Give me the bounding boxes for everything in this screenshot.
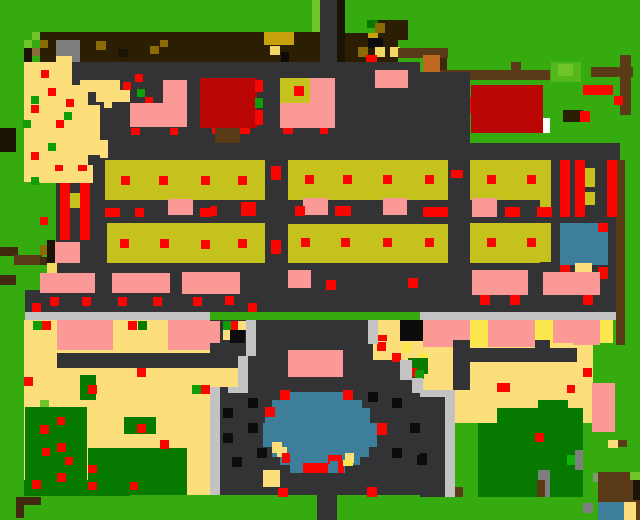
stool [118, 297, 127, 306]
plate [120, 239, 129, 248]
east-bush [497, 408, 583, 423]
roof-trim [40, 40, 48, 48]
stool [50, 297, 59, 306]
plate [201, 240, 210, 249]
berry [160, 440, 169, 449]
seat-mat [472, 198, 497, 217]
se-water [598, 502, 624, 520]
berry [57, 473, 66, 482]
roof-trim [118, 49, 128, 57]
floor-tile [232, 457, 242, 467]
se-shed-door [633, 480, 640, 500]
berry [42, 321, 51, 330]
berry [48, 88, 56, 96]
table-pink [288, 270, 311, 288]
awning-west [57, 320, 113, 350]
stone [583, 503, 593, 513]
bench-west [57, 353, 217, 368]
plaza-annex [420, 397, 445, 497]
pond-buoy [343, 390, 353, 400]
stool [105, 208, 120, 217]
table-pink [40, 273, 95, 293]
plate [305, 175, 314, 184]
berry [88, 385, 97, 394]
berry [57, 417, 65, 425]
plaza-curb [210, 387, 220, 495]
pond [265, 408, 370, 423]
flag [255, 80, 263, 92]
blossom-canopy [24, 62, 72, 182]
berry [65, 457, 73, 465]
trunk [455, 487, 463, 497]
leaf [31, 177, 39, 185]
stool [210, 206, 217, 216]
leaf [255, 98, 263, 108]
berry [66, 99, 74, 107]
patch [210, 368, 238, 387]
berry [88, 465, 97, 473]
plate [383, 238, 392, 247]
bench-north [215, 128, 240, 143]
berry [88, 482, 97, 490]
leaf [138, 321, 147, 330]
plate [527, 175, 536, 184]
stool [283, 128, 293, 134]
table-pink [112, 273, 170, 293]
plate [343, 175, 352, 184]
stool [241, 202, 256, 216]
awning-east [553, 320, 573, 343]
table-pink [472, 270, 528, 295]
berry [130, 482, 138, 490]
awning-east [573, 320, 600, 345]
blossom-streak [104, 100, 112, 108]
banner-pole [543, 118, 550, 133]
west-branch [40, 257, 47, 265]
roof-trim [150, 46, 159, 54]
floor-tile [248, 423, 258, 433]
stool [423, 207, 448, 217]
roof-trim [375, 23, 385, 33]
berry [137, 424, 146, 433]
pond-shore [263, 470, 280, 487]
pond-buoy [377, 423, 387, 435]
awning-east [488, 320, 535, 347]
stump [618, 440, 627, 447]
stool [408, 278, 418, 288]
plate [487, 175, 496, 184]
shrine-pillar [560, 160, 570, 217]
floor-tile [230, 330, 245, 343]
stool [480, 295, 490, 305]
leaf [630, 472, 640, 480]
tray [294, 86, 304, 96]
garden-patch [558, 64, 573, 76]
stool [135, 208, 144, 217]
stool [82, 297, 91, 306]
stool [131, 128, 140, 135]
berry [135, 74, 143, 82]
shrine-pillar [607, 160, 617, 217]
berry [56, 120, 64, 128]
blossom-streak [96, 90, 130, 102]
stool [193, 297, 202, 306]
leaf [31, 96, 39, 104]
red-banner-west [200, 78, 257, 128]
se-shore [636, 502, 640, 520]
table-endcap [540, 223, 551, 262]
leaf [48, 143, 56, 151]
blossom-canopy [100, 140, 108, 158]
stool [278, 488, 288, 497]
plate [425, 238, 434, 247]
west-planter [0, 128, 16, 152]
stall-pink-east [592, 383, 615, 432]
berry [497, 383, 510, 392]
south-path [317, 495, 337, 520]
sidewalk-west [25, 312, 210, 320]
roof-trim [160, 40, 168, 47]
floor-tile [257, 448, 267, 458]
plaza-curb [246, 320, 256, 356]
stool [240, 128, 250, 134]
crate [423, 55, 440, 72]
floor-tile [223, 433, 233, 443]
stool [153, 297, 162, 306]
floor-tile [392, 448, 402, 458]
berry [32, 480, 41, 489]
floor-tile [420, 453, 427, 465]
stool [510, 295, 520, 305]
pond-buoy [282, 453, 290, 463]
awning-gap [600, 320, 613, 343]
stool [320, 128, 328, 134]
shrine-window [585, 192, 595, 205]
stool [583, 295, 593, 305]
blossom-canopy [56, 56, 72, 64]
stool [170, 128, 178, 135]
west-branch [14, 255, 42, 265]
berry [31, 105, 39, 113]
trunk [537, 480, 545, 497]
leaf [33, 321, 42, 330]
plate [121, 176, 130, 185]
plate [383, 175, 392, 184]
berry [137, 368, 146, 377]
patch [608, 440, 618, 448]
stool [326, 280, 336, 290]
berry [580, 111, 590, 122]
torii-west [80, 183, 90, 240]
roof-lamp [270, 46, 280, 55]
plaza-curb [368, 320, 378, 344]
gate-mat [55, 242, 80, 263]
torii-west [60, 183, 70, 240]
stool [451, 170, 463, 178]
berry [123, 82, 131, 90]
table-endcap [540, 160, 551, 207]
shrine-window [585, 168, 595, 187]
sidewalk-east [420, 312, 616, 320]
floor-tile [368, 392, 378, 402]
torii-window [70, 215, 80, 232]
stall-pink-west [130, 103, 187, 127]
floor-tile [248, 398, 258, 408]
stool [367, 487, 377, 497]
bench-east [463, 348, 577, 362]
berry [614, 96, 623, 105]
stall-pink-ne [375, 70, 408, 88]
awning-west [168, 320, 210, 350]
pond-buoy [265, 407, 275, 417]
pond [330, 461, 338, 472]
patch [402, 343, 412, 353]
pond-shore [343, 460, 353, 466]
stool [248, 303, 257, 312]
pond [272, 400, 362, 408]
shrine-pillar [575, 160, 585, 217]
patch [238, 321, 246, 330]
plate [301, 238, 310, 247]
flag [255, 110, 263, 125]
roof-trim [96, 41, 106, 50]
stool [505, 207, 520, 217]
berry [201, 385, 210, 394]
plate [425, 175, 434, 184]
north-wall-edge [337, 0, 345, 62]
aisle-marker [271, 240, 281, 254]
plate [160, 239, 169, 248]
stall-pink-west [163, 80, 187, 103]
red-banner-east [471, 85, 543, 133]
plate [487, 238, 496, 247]
path-hedge [312, 0, 320, 32]
gate-post [47, 240, 55, 263]
table-pink [543, 272, 600, 295]
floor-tile [392, 398, 402, 408]
table-row2-center [288, 224, 448, 263]
leaf [64, 112, 72, 120]
foliage [24, 40, 32, 48]
bench-sign [16, 497, 41, 505]
hall-floor-ne [420, 72, 470, 143]
floor-tile [223, 408, 233, 418]
roof-corner [32, 48, 40, 56]
se-shore [624, 502, 636, 520]
east-tree-trunk [616, 160, 625, 345]
floor-tile [410, 423, 420, 433]
west-branch [0, 275, 16, 285]
plate [527, 238, 536, 247]
berry [31, 152, 39, 160]
bench-sign-leg [16, 505, 24, 518]
plate [341, 238, 350, 247]
berry [42, 448, 50, 456]
plaza-curb [238, 356, 248, 393]
berry [78, 165, 87, 171]
game-map[interactable] [0, 0, 640, 520]
post [575, 450, 583, 470]
plate [238, 239, 247, 248]
plate [159, 176, 168, 185]
stool [295, 206, 305, 216]
leaf [223, 321, 231, 330]
foliage [32, 32, 40, 40]
berry [40, 425, 49, 434]
pond-stall [288, 350, 343, 377]
awning-corner [210, 321, 220, 343]
torii-window [70, 193, 80, 208]
east-fence-post [620, 55, 631, 115]
roof-sign [264, 32, 294, 45]
plate [238, 176, 247, 185]
stool [225, 296, 234, 305]
blossom-canopy [88, 105, 100, 155]
pond-buoy [303, 463, 328, 473]
leaf-gold [47, 263, 57, 273]
aisle-marker [271, 166, 281, 180]
stool [32, 303, 41, 312]
pond-buoy [280, 390, 290, 400]
plaza-curb [445, 390, 455, 497]
berry [583, 368, 592, 377]
awning-gap [470, 320, 488, 347]
pond-buoy [598, 223, 608, 232]
berry [24, 377, 33, 386]
east-fence-bump [511, 62, 521, 70]
plaza-curb [400, 360, 412, 380]
blossom-canopy [72, 85, 88, 165]
berry [57, 443, 66, 452]
berry [55, 165, 63, 171]
berry [567, 385, 575, 393]
berry [377, 342, 386, 351]
berry [41, 70, 49, 78]
seat-mat [168, 199, 193, 215]
red-rail [583, 85, 613, 95]
berry [128, 321, 137, 330]
leaf [23, 120, 31, 128]
seat-mat [303, 198, 328, 215]
berry [535, 433, 544, 442]
stool [537, 207, 552, 217]
plate [201, 176, 210, 185]
berry [40, 217, 48, 225]
stool [335, 206, 351, 216]
seat-mat [383, 198, 407, 215]
leaf [137, 89, 145, 97]
table-pink [182, 272, 240, 294]
leaf [192, 385, 201, 394]
